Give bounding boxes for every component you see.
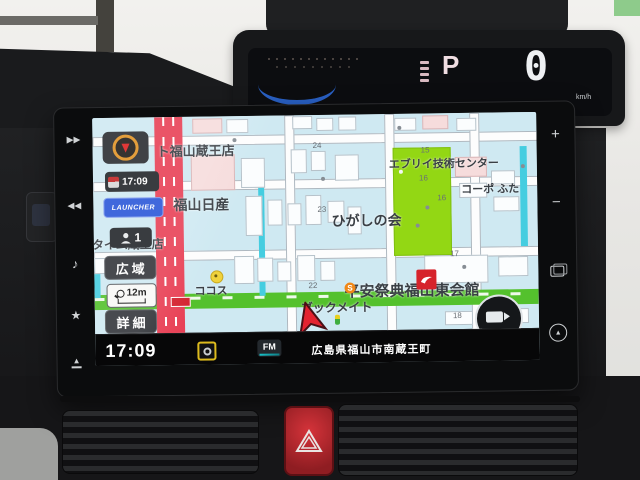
vent-trim [60,396,580,402]
music-button[interactable]: ♪ [56,256,94,272]
map-canvas[interactable]: ト福山蔵王店 福山日産 タイム蔵王店 ひがしの会 エブリイ技術センター コーポ … [92,112,539,334]
home-icon: ▲ [549,324,567,342]
block-number: 23 [317,205,326,214]
eject-button[interactable]: ▲ [57,356,95,369]
previous-track-button[interactable]: ◀◀ [55,200,93,212]
fm-underline [259,354,279,356]
map-building [277,261,291,281]
gear-indicator: P [442,50,459,81]
poi-dot [397,126,401,130]
hazard-triangle-icon [294,428,324,454]
map-building [267,199,282,225]
map-building [292,116,312,129]
map-scale-chip[interactable]: 12m [106,283,156,308]
vics-time-chip[interactable]: 17:09 [105,171,159,192]
fm-source-badge[interactable]: FM [257,339,281,356]
map-label: ひがしの会 [331,210,401,231]
block-number: 24 [312,141,321,150]
map-building [456,118,476,131]
map-building [234,256,254,284]
map-building [422,115,448,129]
map-label: ト福山蔵王店 [156,140,234,160]
map-building [316,118,333,131]
map-label: ココス [194,282,227,298]
block-number: 18 [453,311,462,320]
background-sign [614,0,640,16]
window-frame-horizontal [0,16,98,25]
air-vent-right[interactable] [338,404,578,476]
s-poi-icon: S [344,282,355,293]
block-number: 17 [450,249,459,258]
map-building [493,196,519,211]
status-yellow-icon [197,341,216,360]
home-button[interactable]: ▲ [539,323,577,342]
block-number: 16 [419,173,428,182]
map-building [335,154,359,180]
map-building [257,258,273,282]
poi-dot [321,177,325,181]
launcher-button[interactable]: LAUNCHER [103,197,163,218]
volume-up-button[interactable]: + [536,125,574,143]
block-number: 16 [437,193,446,202]
vics-time: 17:09 [122,176,148,187]
next-track-button[interactable]: ▶▶ [54,134,92,146]
poi-dot [425,205,429,209]
map-label: エブリイ技術センター [389,154,499,172]
compass-widget[interactable] [102,131,148,164]
compass-icon [112,134,138,160]
map-building [287,203,301,225]
door-trim [0,428,58,480]
clock: 17:09 [105,340,156,362]
map-building [498,256,528,276]
map-building [226,119,248,133]
block-number: 22 [308,281,317,290]
map-label: 福山日産 [173,194,229,215]
speed-unit: km/h [576,94,591,101]
dashboard-photo: P 0 km/h ▶▶ ◀◀ ♪ ★ ▲ + − ▲ [0,0,640,480]
favorite-button[interactable]: ★ [57,308,95,323]
map-label: コーポ ふた [461,180,519,197]
map-building [192,118,222,133]
speed-value: 0 [524,44,546,90]
tachometer-arc [258,64,336,105]
passenger-count: 1 [134,230,141,244]
nav-screen: ト福山蔵王店 福山日産 タイム蔵王店 ひがしの会 エブリイ技術センター コーポ … [92,112,539,366]
person-icon [120,232,130,243]
block-number: 15 [421,145,430,154]
air-vent-left[interactable] [62,410,259,474]
map-building [291,149,307,173]
camera-lens-icon [504,312,510,320]
map-building [241,158,265,188]
compass-needle [122,143,130,152]
poi-dot [521,164,525,168]
map-scale-value: 12m [127,288,147,298]
heian-saiten-logo [416,269,436,289]
map-building [320,261,335,281]
map-waterway [520,146,528,246]
display-mode-button[interactable] [538,265,576,277]
poi-dot [462,265,466,269]
pedestrian-icon [335,315,340,325]
volume-down-button[interactable]: − [537,193,575,211]
magnifier-icon [117,289,125,297]
current-address: 広島県福山市南蔵王町 [311,340,431,358]
display-icon [550,266,564,277]
nav-display-unit: ▶▶ ◀◀ ♪ ★ ▲ + − ▲ [53,100,579,397]
poi-dot [416,224,420,228]
mirror-control-label [32,204,50,226]
vics-icon [108,176,119,187]
passenger-chip[interactable]: 1 [110,227,152,248]
wide-area-button[interactable]: 広域 [104,255,156,280]
nav-status-bar: 17:09 FM 広島県福山市南蔵王町 [95,328,539,366]
scale-bracket [118,298,146,303]
detail-button[interactable]: 詳細 [105,309,157,334]
eject-icon: ▲ [73,356,81,365]
map-building [245,196,263,236]
eject-icon-bar [72,366,82,368]
hazard-button[interactable] [284,406,334,476]
map-building [297,255,315,281]
map-building [311,151,326,171]
window-frame-vertical [96,0,114,52]
camera-icon [486,311,503,322]
cocos-poi-icon [210,270,223,283]
tachometer-ticks [268,58,360,60]
road-number-badge [171,297,191,307]
gear-gate-icon [420,58,434,98]
map-building [338,116,356,130]
odometer-row [276,66,352,68]
